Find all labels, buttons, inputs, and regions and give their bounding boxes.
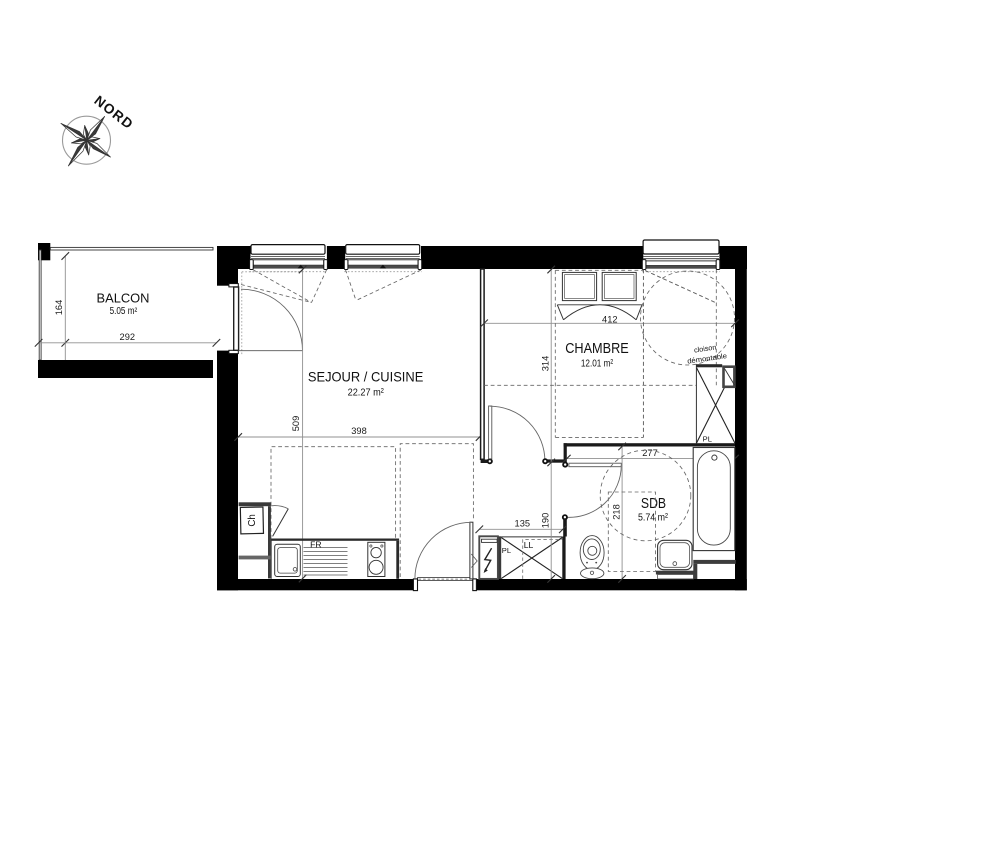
- svg-text:12.01 m²: 12.01 m²: [581, 358, 614, 369]
- svg-text:135: 135: [515, 519, 531, 529]
- svg-text:164: 164: [54, 300, 64, 316]
- svg-text:PL: PL: [703, 435, 712, 444]
- svg-text:SEJOUR / CUISINE: SEJOUR / CUISINE: [308, 369, 424, 384]
- svg-text:190: 190: [540, 513, 550, 529]
- svg-text:5.74 m²: 5.74 m²: [638, 513, 669, 524]
- svg-text:PL: PL: [502, 546, 511, 555]
- svg-text:412: 412: [602, 315, 618, 325]
- svg-text:314: 314: [541, 356, 551, 372]
- svg-text:5.05 m²: 5.05 m²: [110, 306, 138, 317]
- svg-text:LL: LL: [524, 540, 534, 550]
- svg-text:Ch: Ch: [247, 514, 258, 527]
- svg-text:SDB: SDB: [641, 495, 666, 512]
- svg-text:22.27 m²: 22.27 m²: [348, 387, 385, 398]
- svg-text:509: 509: [291, 416, 301, 432]
- svg-text:218: 218: [612, 504, 622, 520]
- svg-text:CHAMBRE: CHAMBRE: [565, 340, 629, 357]
- svg-text:292: 292: [120, 332, 136, 342]
- svg-text:398: 398: [351, 426, 367, 436]
- svg-text:FR: FR: [310, 540, 321, 550]
- svg-text:BALCON: BALCON: [97, 291, 150, 306]
- svg-text:277: 277: [642, 448, 658, 458]
